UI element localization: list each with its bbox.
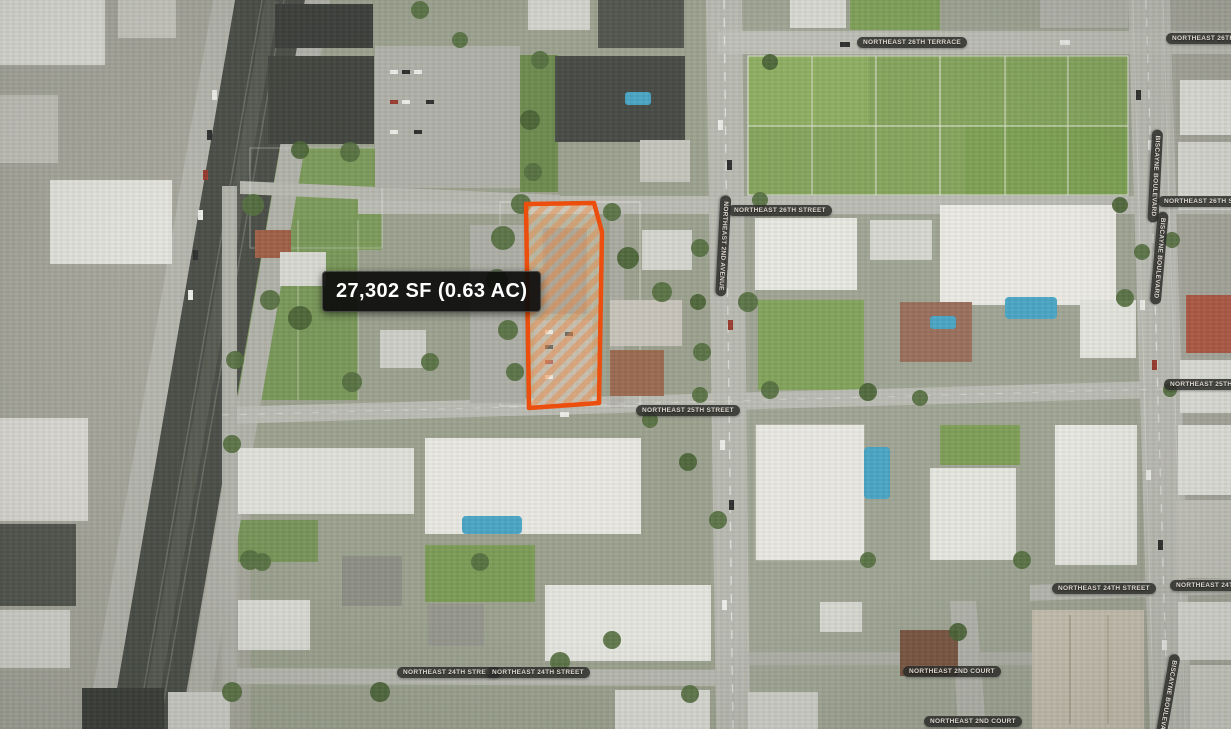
street-label-ne-26th-street: NORTHEAST 26TH STREET: [728, 205, 832, 216]
site-parcel-overlay: [0, 0, 1231, 729]
street-label-ne-26th-street-right: NORTHEAST 26TH STREET: [1158, 196, 1231, 207]
aerial-site-map: 27,302 SF (0.63 AC) NORTHEAST 26TH TERRA…: [0, 0, 1231, 729]
street-label-ne-2nd-court-bottom: NORTHEAST 2ND COURT: [924, 716, 1022, 727]
street-label-ne-26th-terrace-right: NORTHEAST 26TH TERRACE: [1166, 33, 1231, 44]
street-label-ne-24th-street-b: NORTHEAST 24TH STREET: [486, 667, 590, 678]
area-callout: 27,302 SF (0.63 AC): [322, 271, 541, 312]
street-label-ne-26th-terrace: NORTHEAST 26TH TERRACE: [857, 37, 967, 48]
street-label-ne-24th-street-right-b: NORTHEAST 24TH STREET: [1170, 580, 1231, 591]
street-label-ne-25th-street-right: NORTHEAST 25TH STREET: [1164, 379, 1231, 390]
street-label-ne-25th-street: NORTHEAST 25TH STREET: [636, 405, 740, 416]
street-label-ne-24th-street-right-a: NORTHEAST 24TH STREET: [1052, 583, 1156, 594]
street-label-ne-2nd-court: NORTHEAST 2ND COURT: [903, 666, 1001, 677]
